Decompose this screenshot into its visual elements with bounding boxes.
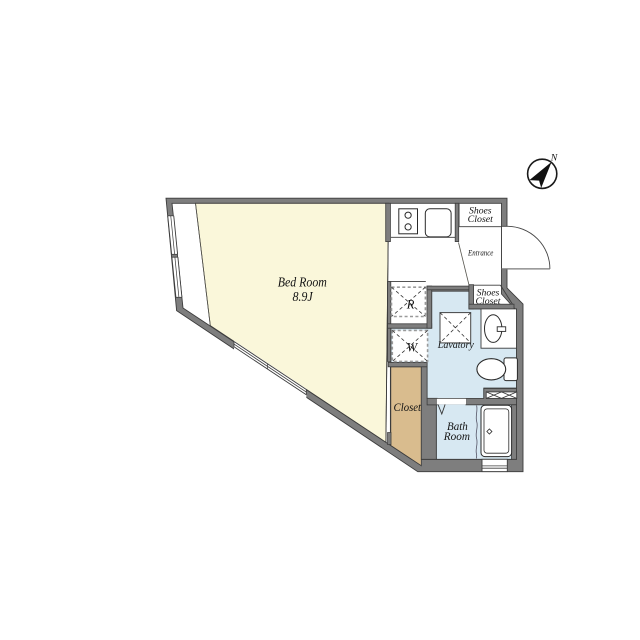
svg-text:Room: Room xyxy=(443,431,470,443)
svg-text:Bed Room: Bed Room xyxy=(278,275,327,290)
svg-text:Lavatory: Lavatory xyxy=(437,339,474,351)
svg-text:8.9J: 8.9J xyxy=(292,289,313,304)
svg-text:N: N xyxy=(550,152,558,163)
svg-text:Closet: Closet xyxy=(394,402,422,414)
svg-text:Entrance: Entrance xyxy=(467,248,493,257)
svg-text:Closet: Closet xyxy=(468,214,494,224)
svg-text:W: W xyxy=(407,341,419,355)
svg-text:Closet: Closet xyxy=(476,296,501,306)
svg-text:R: R xyxy=(406,297,415,311)
